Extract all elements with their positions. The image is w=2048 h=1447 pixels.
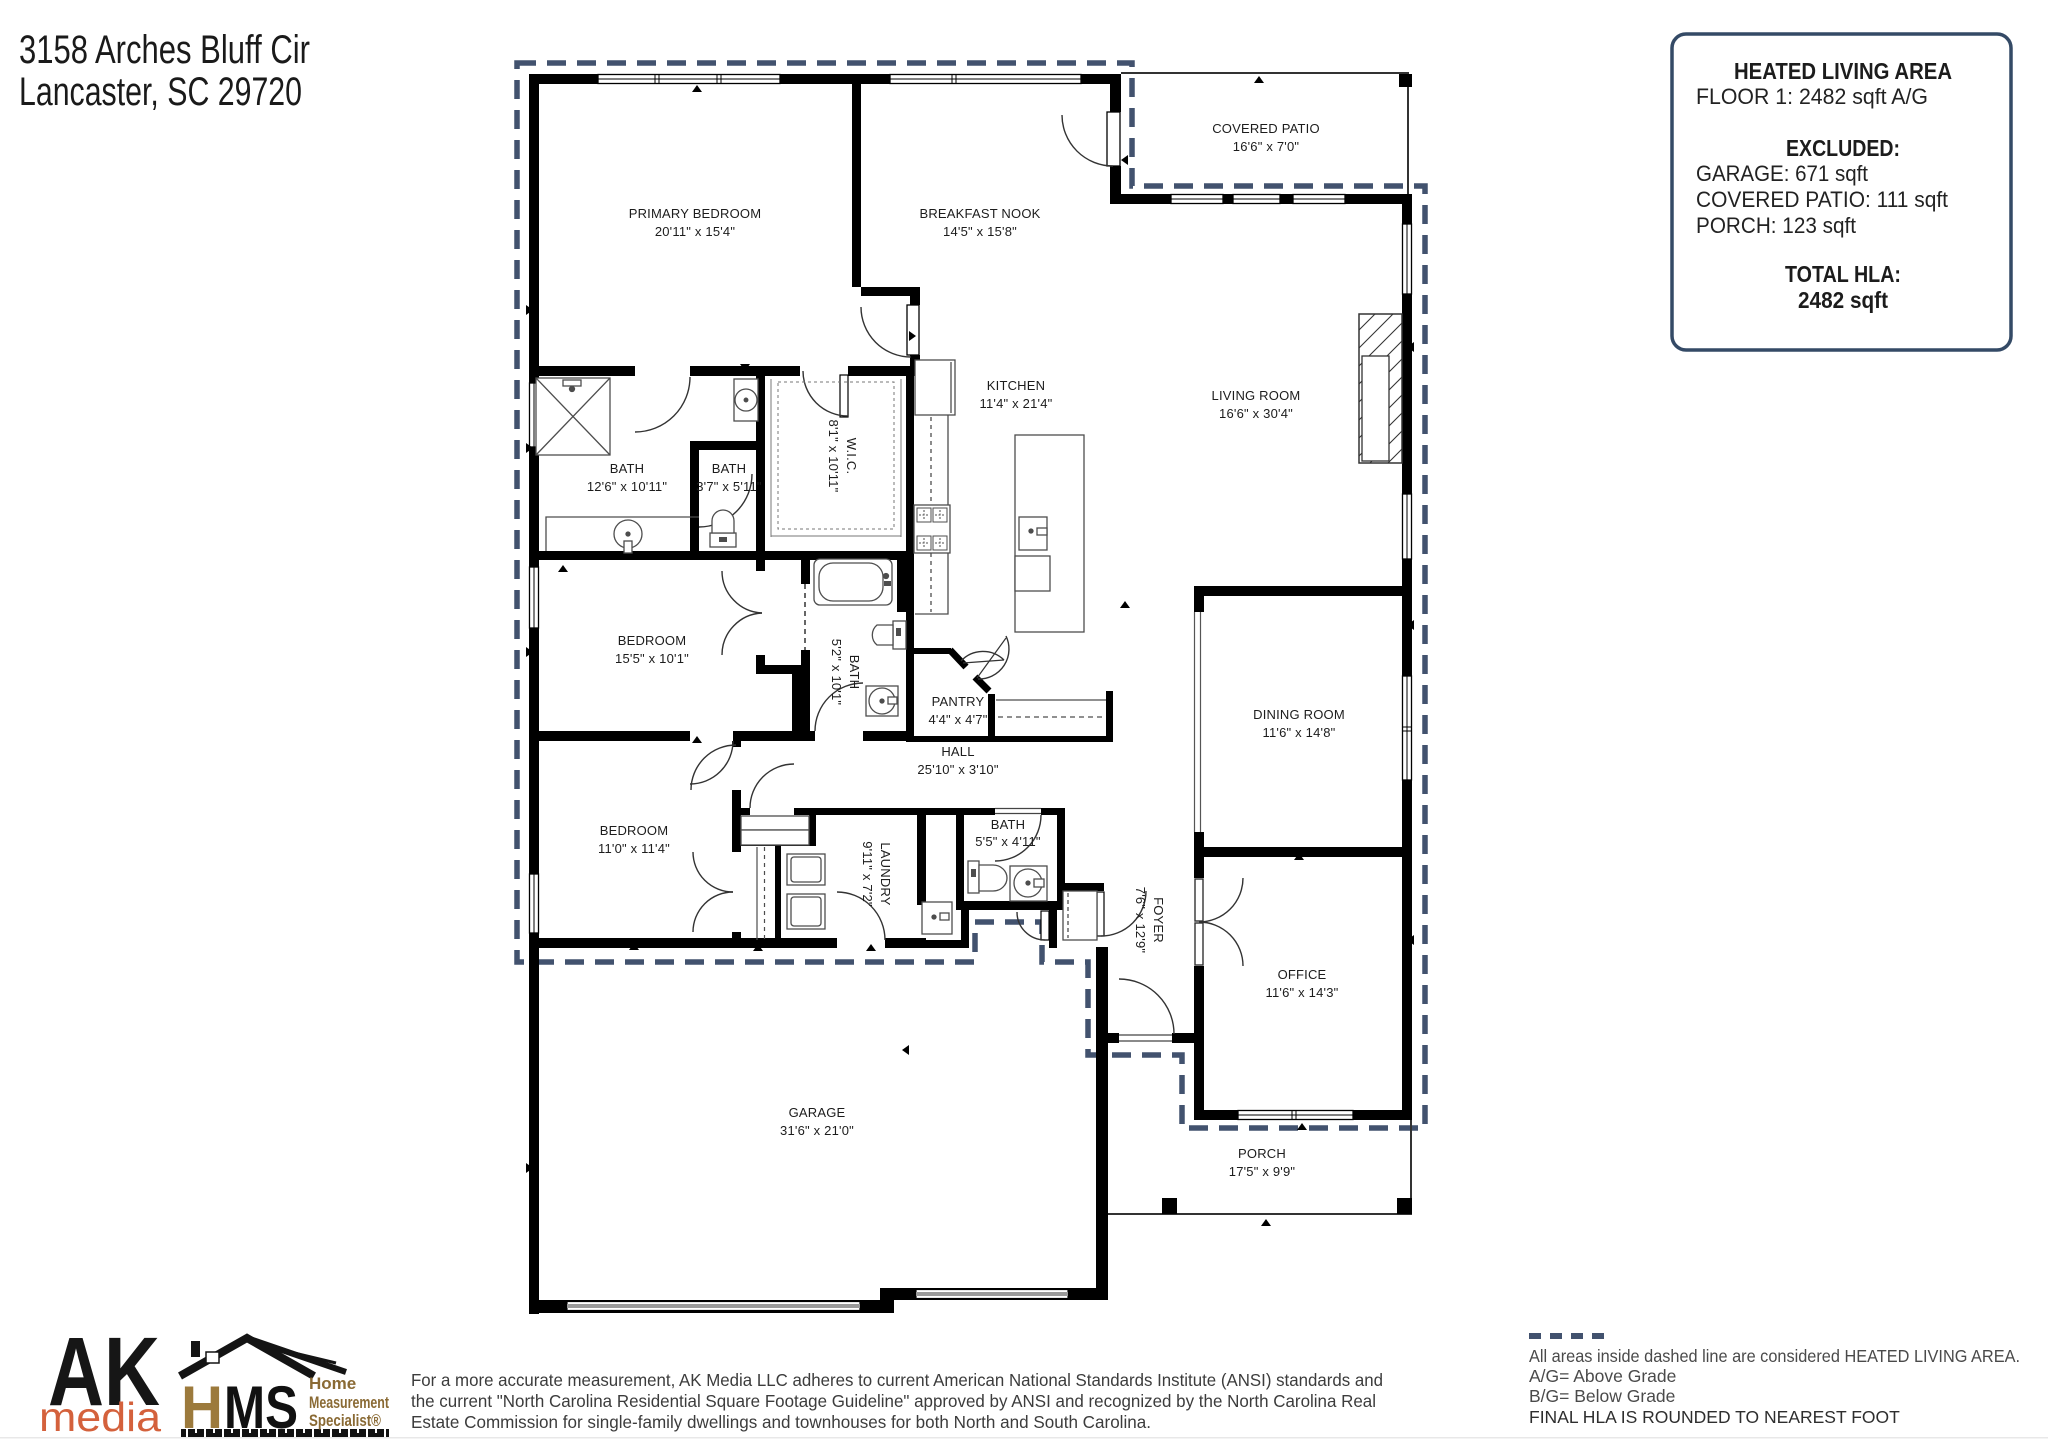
svg-text:LIVING ROOM: LIVING ROOM xyxy=(1212,388,1301,403)
svg-text:9'11" x 7'2": 9'11" x 7'2" xyxy=(860,841,875,907)
svg-text:17'5" x 9'9": 17'5" x 9'9" xyxy=(1229,1164,1296,1179)
svg-text:16'6" x 7'0": 16'6" x 7'0" xyxy=(1233,139,1300,154)
svg-text:Lancaster, SC 29720: Lancaster, SC 29720 xyxy=(19,70,302,114)
svg-text:16'6" x 30'4": 16'6" x 30'4" xyxy=(1219,406,1293,421)
svg-text:FLOOR 1: 2482 sqft A/G: FLOOR 1: 2482 sqft A/G xyxy=(1696,84,1928,109)
svg-text:LAUNDRY: LAUNDRY xyxy=(878,842,893,905)
svg-text:TOTAL HLA:: TOTAL HLA: xyxy=(1785,261,1901,287)
svg-text:All areas inside dashed line a: All areas inside dashed line are conside… xyxy=(1529,1346,2020,1366)
svg-text:BEDROOM: BEDROOM xyxy=(618,633,687,648)
svg-text:14'5" x 15'8": 14'5" x 15'8" xyxy=(943,224,1017,239)
svg-text:25'10" x 3'10": 25'10" x 3'10" xyxy=(917,762,999,777)
svg-text:BATH: BATH xyxy=(712,461,747,476)
svg-text:BREAKFAST NOOK: BREAKFAST NOOK xyxy=(919,206,1040,221)
svg-text:FINAL HLA IS ROUNDED TO NEARES: FINAL HLA IS ROUNDED TO NEAREST FOOT xyxy=(1529,1407,1900,1427)
svg-text:A/G= Above Grade: A/G= Above Grade xyxy=(1529,1366,1676,1386)
svg-text:KITCHEN: KITCHEN xyxy=(987,378,1045,393)
svg-text:GARAGE: GARAGE xyxy=(789,1105,846,1120)
svg-text:DINING ROOM: DINING ROOM xyxy=(1253,707,1345,722)
svg-text:COVERED PATIO: 111 sqft: COVERED PATIO: 111 sqft xyxy=(1696,187,1948,212)
svg-text:5'5" x 4'11": 5'5" x 4'11" xyxy=(975,834,1041,849)
svg-text:PANTRY: PANTRY xyxy=(932,694,985,709)
svg-text:Home: Home xyxy=(309,1374,356,1393)
svg-text:the current "North Carolina Re: the current "North Carolina Residential … xyxy=(411,1391,1376,1411)
svg-text:For a more accurate measuremen: For a more accurate measurement, AK Medi… xyxy=(411,1370,1383,1390)
svg-text:EXCLUDED:: EXCLUDED: xyxy=(1786,135,1900,161)
svg-text:3158 Arches Bluff Cir: 3158 Arches Bluff Cir xyxy=(19,28,310,72)
svg-text:HEATED LIVING AREA: HEATED LIVING AREA xyxy=(1734,58,1952,84)
svg-text:20'11" x 15'4": 20'11" x 15'4" xyxy=(655,224,736,239)
svg-text:BATH: BATH xyxy=(610,461,645,476)
svg-text:HALL: HALL xyxy=(941,744,974,759)
svg-text:11'4" x 21'4": 11'4" x 21'4" xyxy=(980,396,1053,411)
svg-text:media: media xyxy=(39,1394,161,1440)
svg-text:OFFICE: OFFICE xyxy=(1278,967,1327,982)
svg-text:GARAGE: 671 sqft: GARAGE: 671 sqft xyxy=(1696,161,1868,186)
svg-text:B/G= Below Grade: B/G= Below Grade xyxy=(1529,1386,1675,1406)
svg-text:BEDROOM: BEDROOM xyxy=(600,823,669,838)
svg-text:11'0" x 11'4": 11'0" x 11'4" xyxy=(598,841,670,856)
svg-text:4'4" x 4'7": 4'4" x 4'7" xyxy=(928,712,987,727)
svg-text:COVERED PATIO: COVERED PATIO xyxy=(1212,121,1320,136)
svg-text:BATH: BATH xyxy=(847,655,862,690)
svg-text:Estate Commission for single-f: Estate Commission for single-family dwel… xyxy=(411,1412,1151,1432)
svg-text:15'5" x 10'1": 15'5" x 10'1" xyxy=(615,651,689,666)
svg-text:8'1" x 10'11": 8'1" x 10'11" xyxy=(826,420,841,493)
svg-text:PORCH: 123 sqft: PORCH: 123 sqft xyxy=(1696,213,1856,238)
svg-text:12'6" x 10'11": 12'6" x 10'11" xyxy=(587,479,668,494)
svg-text:2482 sqft: 2482 sqft xyxy=(1798,287,1888,313)
svg-text:W.I.C.: W.I.C. xyxy=(844,438,859,475)
svg-text:FOYER: FOYER xyxy=(1151,897,1166,943)
svg-text:PORCH: PORCH xyxy=(1238,1146,1286,1161)
svg-text:Measurement: Measurement xyxy=(309,1393,389,1412)
svg-text:Specialist®: Specialist® xyxy=(309,1411,381,1430)
svg-text:PRIMARY BEDROOM: PRIMARY BEDROOM xyxy=(629,206,762,221)
svg-text:5'2" x 10'1": 5'2" x 10'1" xyxy=(829,639,844,706)
svg-text:BATH: BATH xyxy=(991,817,1026,832)
svg-text:3'7" x 5'11": 3'7" x 5'11" xyxy=(696,479,762,494)
svg-text:11'6" x 14'8": 11'6" x 14'8" xyxy=(1263,725,1336,740)
svg-text:11'6" x 14'3": 11'6" x 14'3" xyxy=(1266,985,1339,1000)
svg-text:7'6" x 12'9": 7'6" x 12'9" xyxy=(1133,887,1148,954)
svg-text:31'6" x 21'0": 31'6" x 21'0" xyxy=(780,1123,854,1138)
